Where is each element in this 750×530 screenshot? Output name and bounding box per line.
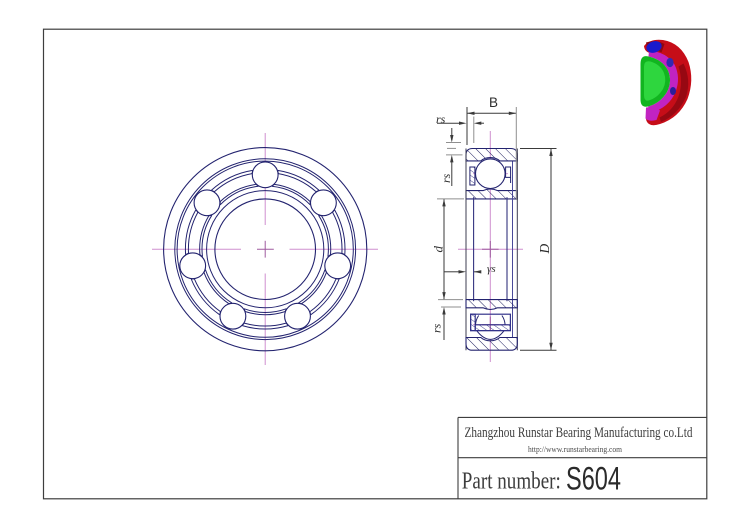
svg-text:γs: γs [487,263,496,275]
svg-text:S604: S604 [566,461,621,497]
svg-text:rs: rs [430,323,444,333]
svg-text:Zhangzhou Runstar Bearing Manu: Zhangzhou Runstar Bearing Manufacturing … [465,425,694,441]
svg-text:d: d [431,246,446,253]
svg-text:B: B [489,95,498,110]
svg-text:Part number:: Part number: [462,469,561,495]
svg-text:rs: rs [436,112,446,126]
svg-text:http://www.runstarbearing.com: http://www.runstarbearing.com [528,444,622,454]
svg-text:rs: rs [439,173,453,183]
svg-text:D: D [537,244,552,255]
